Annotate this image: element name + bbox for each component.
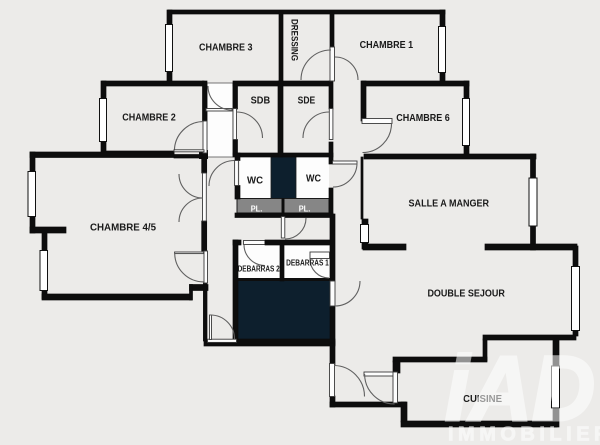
svg-text:DEBARRAS 1: DEBARRAS 1 <box>286 259 329 268</box>
svg-text:CHAMBRE 6: CHAMBRE 6 <box>396 113 450 124</box>
svg-text:CHAMBRE 1: CHAMBRE 1 <box>360 40 414 51</box>
svg-text:DEBARRAS 2: DEBARRAS 2 <box>238 265 281 274</box>
svg-text:PL.: PL. <box>251 205 263 214</box>
svg-text:PL.: PL. <box>299 205 311 214</box>
svg-text:DRESSING: DRESSING <box>290 19 300 61</box>
svg-text:DOUBLE SEJOUR: DOUBLE SEJOUR <box>427 289 505 300</box>
svg-text:SDE: SDE <box>298 96 316 107</box>
svg-text:SDB: SDB <box>251 96 271 107</box>
svg-text:IMMOBILIER: IMMOBILIER <box>448 424 600 445</box>
svg-text:CHAMBRE 2: CHAMBRE 2 <box>122 113 176 124</box>
svg-text:SALLE A MANGER: SALLE A MANGER <box>409 199 490 210</box>
svg-text:WC: WC <box>247 176 263 187</box>
svg-text:CHAMBRE 4/5: CHAMBRE 4/5 <box>90 223 156 234</box>
svg-text:WC: WC <box>306 174 321 185</box>
svg-text:CHAMBRE 3: CHAMBRE 3 <box>199 43 253 54</box>
